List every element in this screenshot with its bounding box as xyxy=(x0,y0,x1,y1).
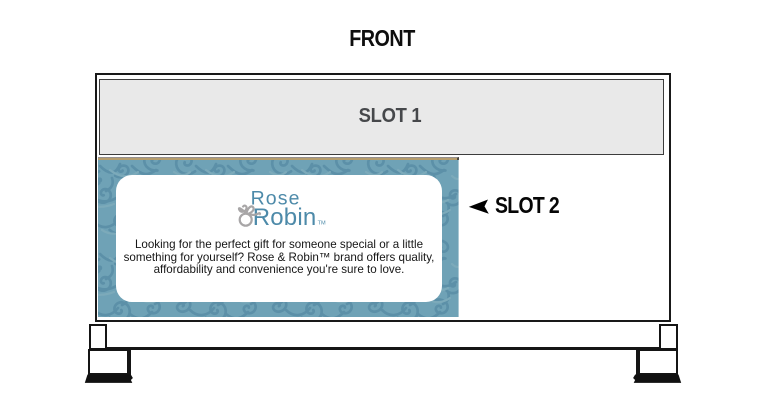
svg-text:Robin: Robin xyxy=(253,204,317,231)
svg-text:TM: TM xyxy=(318,221,326,227)
